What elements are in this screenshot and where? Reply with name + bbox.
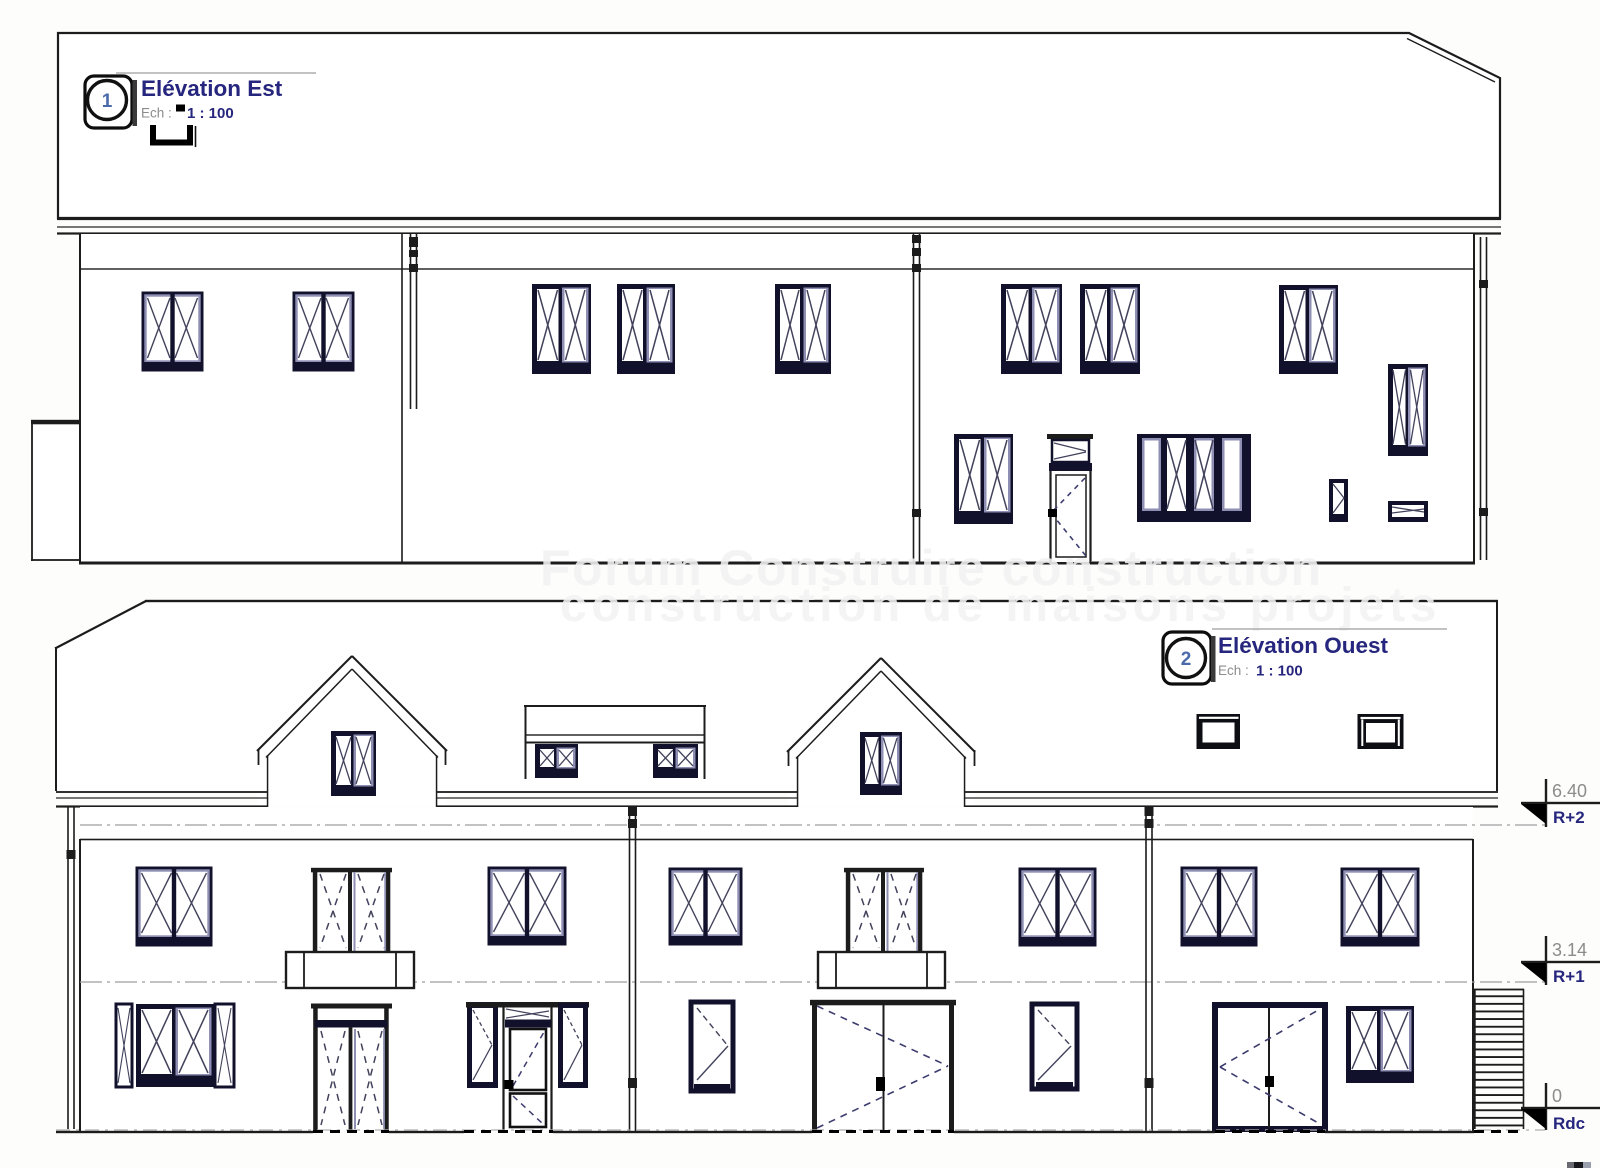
- svg-text:6.40: 6.40: [1552, 781, 1587, 801]
- svg-text:R+2: R+2: [1553, 808, 1585, 827]
- svg-text:3.14: 3.14: [1552, 940, 1587, 960]
- svg-text:Rdc: Rdc: [1553, 1114, 1585, 1133]
- svg-text:2: 2: [1181, 649, 1192, 670]
- svg-text:construction de maisons projet: construction de maisons projets: [560, 579, 1441, 632]
- svg-text:Ech :: Ech :: [1218, 663, 1249, 678]
- svg-text:Elévation Ouest: Elévation Ouest: [1218, 633, 1389, 658]
- svg-text:0: 0: [1552, 1086, 1562, 1106]
- svg-text:Elévation Est: Elévation Est: [141, 76, 283, 101]
- svg-text:1 : 100: 1 : 100: [1256, 663, 1303, 680]
- svg-text:1 : 100: 1 : 100: [187, 105, 234, 122]
- svg-text:1: 1: [102, 91, 113, 112]
- svg-text:Ech :: Ech :: [141, 106, 172, 121]
- svg-text:R+1: R+1: [1553, 967, 1585, 986]
